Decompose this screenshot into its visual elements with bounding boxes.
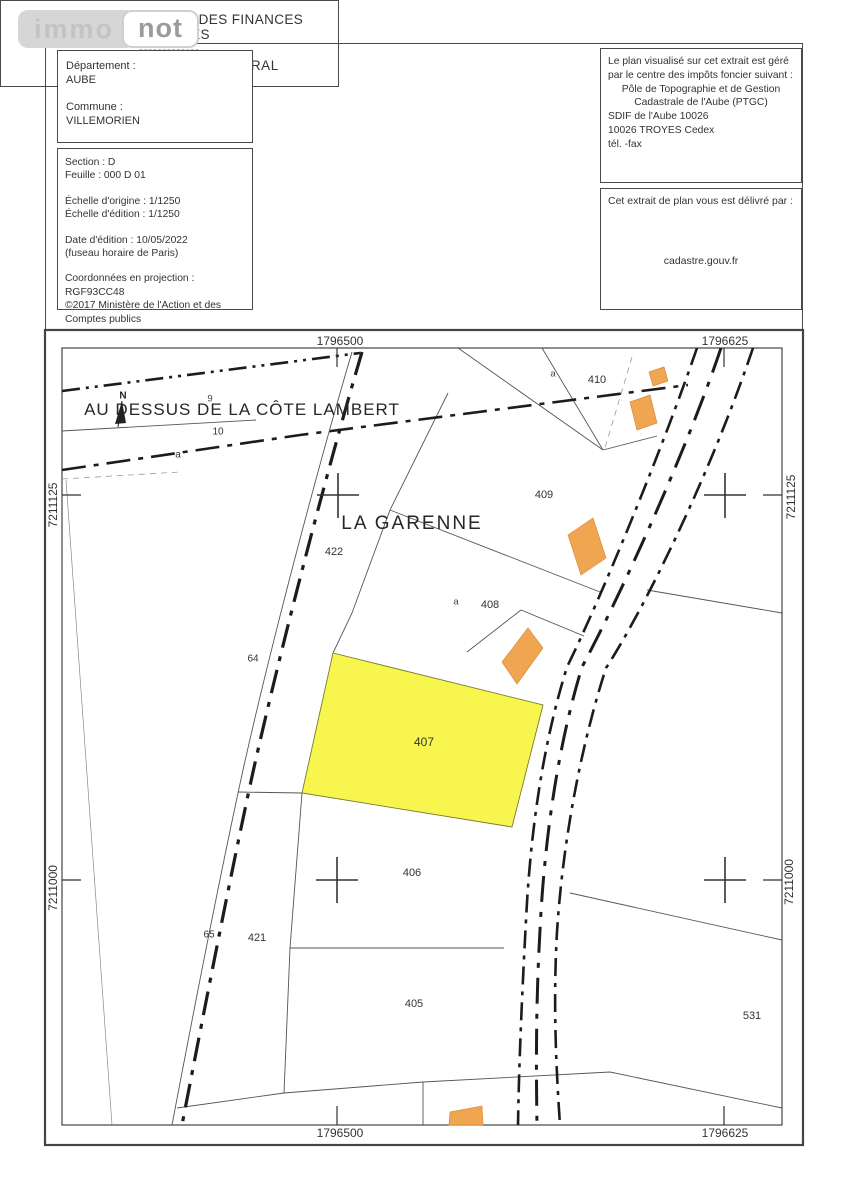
grid-coord-right-lower: 7211000 [782,859,796,905]
grid-coord-bottom-right: 1796625 [702,1126,749,1140]
subdivision-a-408: a [453,597,458,608]
grid-coord-bottom-left: 1796500 [317,1126,364,1140]
cadastral-map-canvas [0,0,848,1200]
immonot-logo: immo not [18,10,199,48]
parcel-number-65: 65 [203,930,214,941]
place-name-cote-lambert: AU DESSUS DE LA CÔTE LAMBERT [84,400,400,420]
north-label: N [119,391,126,402]
parcel-number-9: 9 [207,394,212,405]
parcel-number-64: 64 [247,654,258,665]
parcel-number-410: 410 [588,374,606,386]
parcel-number-406: 406 [403,867,421,879]
grid-coord-right-upper: 7211125 [784,475,798,520]
parcel-number-407: 407 [414,735,434,749]
parcel-number-405: 405 [405,998,423,1010]
grid-coord-top-right: 1796625 [702,334,749,348]
grid-coord-left-lower: 7211000 [46,865,60,911]
grid-coord-left-upper: 7211125 [46,483,60,528]
subdivision-a-410: a [550,369,555,380]
parcel-number-422: 422 [325,546,343,558]
cadastral-extract-page: immo not Département : AUBE Commune : VI… [0,0,848,1200]
parcel-number-531: 531 [743,1010,761,1022]
place-name-la-garenne: LA GARENNE [341,513,482,535]
parcel-number-409: 409 [535,489,553,501]
logo-immo-text: immo [18,10,128,48]
logo-not-text: not [122,10,199,48]
parcel-number-10: 10 [212,427,223,438]
parcel-number-421: 421 [248,932,266,944]
subdivision-a-left: a [175,450,181,461]
grid-coord-top-left: 1796500 [317,334,364,348]
parcel-number-408: 408 [481,599,499,611]
